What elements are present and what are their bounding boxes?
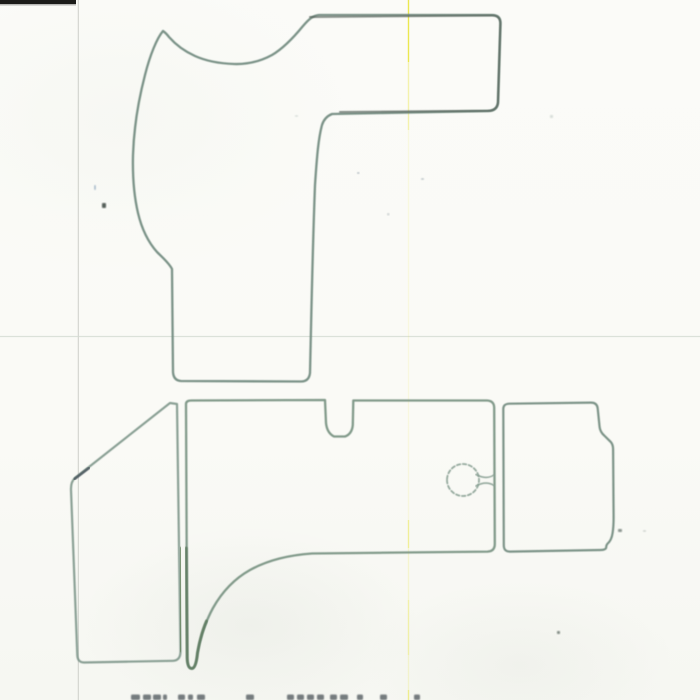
cutoff-letter-top (188, 695, 193, 700)
cutoff-letter-top (297, 695, 304, 700)
drain-hole-circle (447, 464, 479, 496)
pattern-outlines (71, 15, 614, 669)
cutoff-letter-top (380, 695, 387, 700)
cutoff-letter-top (153, 695, 161, 700)
scan-artifacts (0, 0, 700, 700)
cutoff-letter-top (246, 695, 254, 700)
scanned-page (0, 0, 700, 700)
cutoff-letter-top (330, 695, 337, 700)
speck (550, 115, 553, 118)
speck (295, 115, 298, 117)
cutoff-text-fragments (131, 695, 420, 700)
speck (557, 631, 560, 634)
cutoff-letter-top (317, 695, 324, 700)
speck (421, 178, 424, 180)
cutoff-letter-top (287, 695, 294, 700)
speck (618, 529, 622, 532)
speck (102, 203, 106, 208)
cutoff-letter-top (414, 695, 420, 700)
speck (357, 172, 360, 174)
cutoff-letter-top (357, 695, 363, 700)
speck (643, 530, 646, 532)
toner-bar-fade (0, 4, 76, 6)
right-mat-outline (503, 403, 613, 552)
cutoff-letter-top (340, 695, 348, 700)
top-pattern-outline (133, 15, 501, 382)
cutoff-letter-top (178, 695, 185, 700)
cutoff-letter-top (131, 695, 140, 700)
left-mat-outline (71, 403, 181, 663)
center-mat-outline (186, 400, 495, 669)
left-mat-dark-corner-segment (75, 468, 90, 479)
speck (94, 185, 96, 190)
cutoff-letter-top (163, 695, 167, 700)
cutoff-letter-top (143, 695, 151, 700)
scan-specks (94, 115, 646, 634)
speck (387, 213, 390, 216)
cutoff-letter-top (307, 695, 314, 700)
cutoff-letter-top (197, 695, 205, 700)
scan-canvas (0, 0, 700, 700)
top-pattern-arm-emphasis (310, 16, 500, 113)
center-mat-heel-dark-segment (186, 548, 206, 669)
toner-bar (0, 0, 76, 4)
